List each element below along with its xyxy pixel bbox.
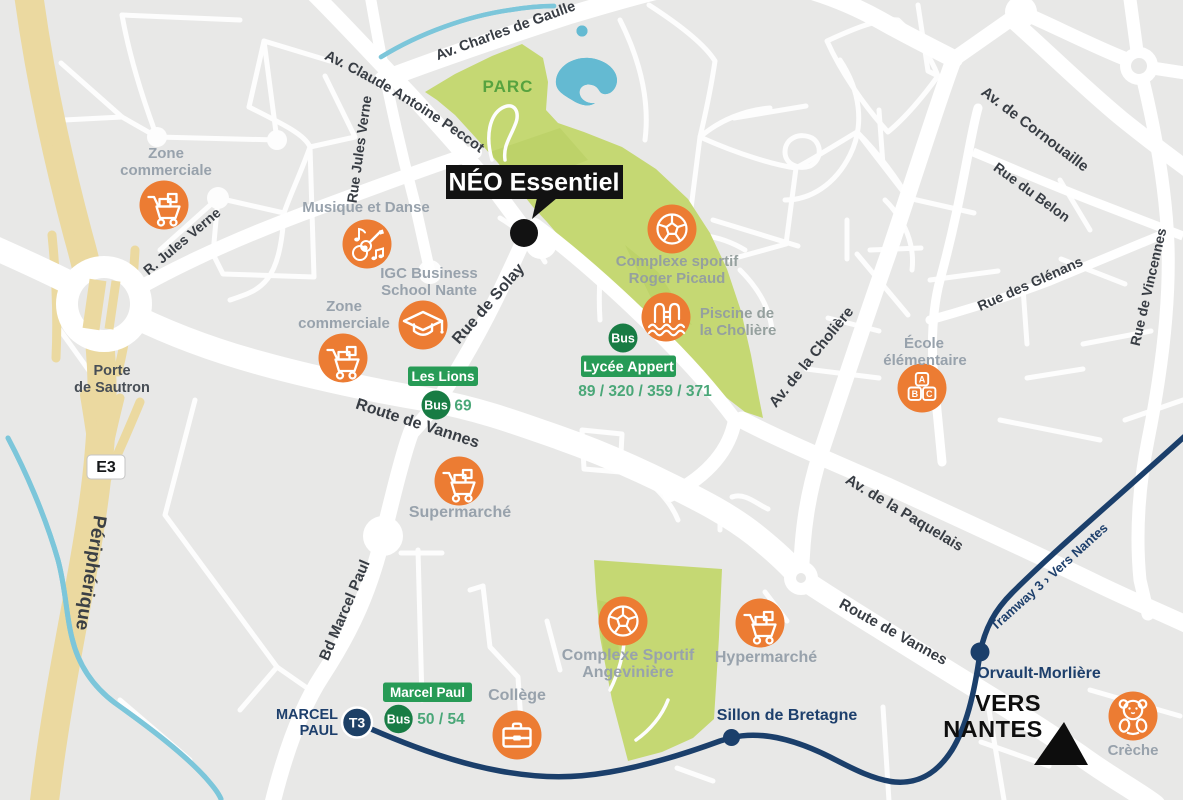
svg-text:commerciale: commerciale: [298, 315, 390, 332]
svg-text:Supermarché: Supermarché: [409, 504, 511, 521]
svg-text:NÉO Essentiel: NÉO Essentiel: [449, 168, 620, 197]
svg-text:Marcel Paul: Marcel Paul: [390, 685, 465, 700]
svg-text:Hypermarché: Hypermarché: [715, 649, 817, 666]
svg-text:IGC Business: IGC Business: [380, 265, 478, 282]
svg-text:T3: T3: [349, 715, 366, 731]
svg-text:Porte: Porte: [93, 363, 130, 379]
svg-text:Angevinière: Angevinière: [582, 664, 674, 681]
svg-text:Orvault-Morlière: Orvault-Morlière: [977, 665, 1101, 682]
svg-text:Collège: Collège: [488, 687, 546, 704]
svg-text:Musique et Danse: Musique et Danse: [302, 199, 430, 216]
svg-text:Bus: Bus: [424, 399, 448, 413]
svg-text:Lycée Appert: Lycée Appert: [583, 360, 674, 376]
svg-text:de Sautron: de Sautron: [74, 380, 150, 396]
svg-text:Piscine de: Piscine de: [700, 305, 774, 322]
svg-text:Zone: Zone: [326, 298, 362, 315]
svg-text:69: 69: [454, 398, 472, 415]
svg-text:VERS: VERS: [975, 690, 1041, 716]
svg-text:Bus: Bus: [387, 713, 411, 727]
svg-text:Bus: Bus: [611, 332, 635, 346]
svg-text:Complexe sportif: Complexe sportif: [616, 253, 740, 270]
svg-text:Crèche: Crèche: [1108, 742, 1159, 759]
svg-text:NANTES: NANTES: [943, 716, 1043, 742]
svg-text:MARCEL: MARCEL: [276, 707, 338, 723]
svg-text:School Nante: School Nante: [381, 282, 477, 299]
svg-text:Les Lions: Les Lions: [411, 369, 474, 384]
svg-text:Complexe Sportif: Complexe Sportif: [562, 647, 695, 664]
svg-text:89 / 320 / 359 / 371: 89 / 320 / 359 / 371: [578, 383, 712, 400]
svg-text:PARC: PARC: [483, 77, 534, 96]
svg-text:50 / 54: 50 / 54: [417, 711, 465, 728]
svg-text:commerciale: commerciale: [120, 162, 212, 179]
svg-text:élémentaire: élémentaire: [883, 352, 966, 369]
svg-text:la Cholière: la Cholière: [700, 322, 777, 339]
svg-text:École: École: [904, 335, 944, 352]
svg-text:PAUL: PAUL: [300, 723, 339, 739]
svg-text:E3: E3: [96, 459, 116, 476]
svg-text:Sillon de Bretagne: Sillon de Bretagne: [717, 707, 858, 724]
svg-text:Zone: Zone: [148, 145, 184, 162]
svg-text:Roger Picaud: Roger Picaud: [629, 270, 726, 287]
